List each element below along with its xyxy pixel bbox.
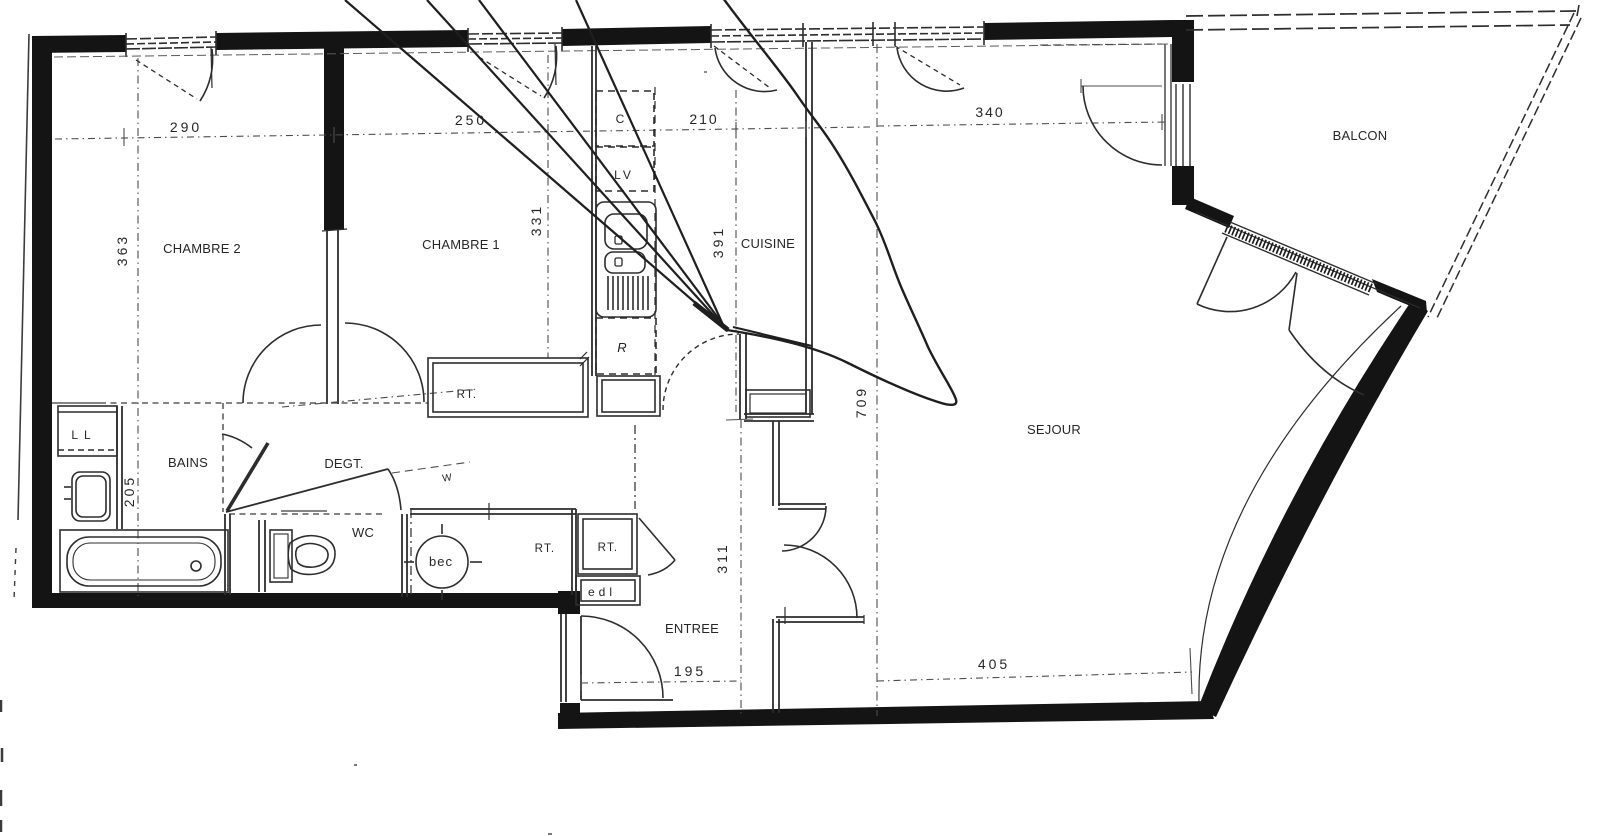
svg-text:391: 391 — [710, 226, 726, 258]
svg-text:CHAMBRE 2: CHAMBRE 2 — [163, 241, 241, 256]
svg-text:CHAMBRE 1: CHAMBRE 1 — [422, 237, 500, 252]
svg-text:ENTREE: ENTREE — [665, 621, 719, 636]
svg-text:BAINS: BAINS — [168, 455, 208, 470]
svg-text:363: 363 — [114, 234, 130, 266]
svg-text:405: 405 — [978, 656, 1010, 672]
svg-text:195: 195 — [674, 663, 706, 679]
svg-text:BALCON: BALCON — [1333, 128, 1388, 143]
svg-text:W: W — [442, 472, 453, 484]
svg-text:edl: edl — [588, 585, 616, 599]
svg-text:250: 250 — [455, 112, 487, 128]
svg-text:210: 210 — [689, 111, 718, 127]
svg-text:709: 709 — [853, 386, 869, 418]
svg-text:290: 290 — [170, 119, 202, 135]
svg-text:bec: bec — [429, 554, 453, 569]
svg-text:R: R — [617, 340, 627, 355]
svg-text:WC: WC — [352, 525, 374, 540]
svg-text:SEJOUR: SEJOUR — [1027, 422, 1081, 437]
svg-text:LV: LV — [614, 168, 634, 182]
svg-text:205: 205 — [121, 475, 137, 507]
svg-text:331: 331 — [528, 204, 544, 236]
svg-text:CUISINE: CUISINE — [741, 236, 795, 251]
svg-text:340: 340 — [975, 104, 1004, 120]
svg-text:RT.: RT. — [598, 542, 619, 554]
svg-text:311: 311 — [714, 542, 730, 573]
svg-text:C: C — [616, 112, 625, 126]
svg-text:DEGT.: DEGT. — [324, 456, 363, 471]
svg-text:RT.: RT. — [535, 543, 556, 555]
svg-text:LL: LL — [71, 428, 96, 442]
svg-text:RT.: RT. — [457, 389, 478, 401]
